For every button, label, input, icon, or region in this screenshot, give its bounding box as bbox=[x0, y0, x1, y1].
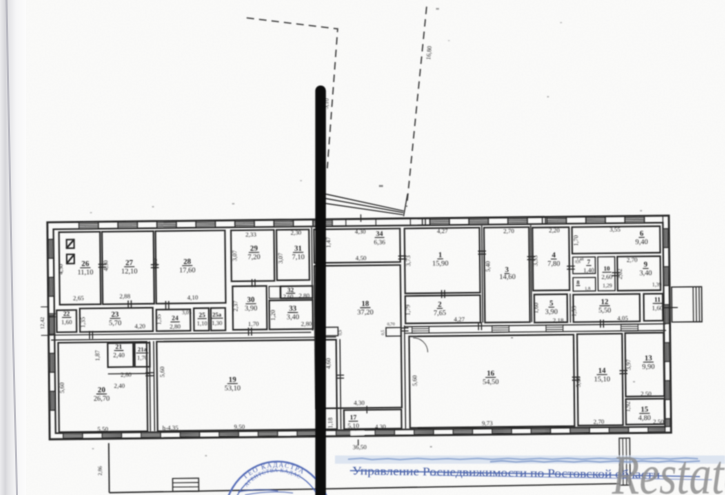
svg-text:4,80: 4,80 bbox=[638, 414, 651, 422]
svg-text:2,02: 2,02 bbox=[617, 269, 624, 280]
svg-text:2,70: 2,70 bbox=[503, 228, 514, 235]
svg-text:4,50: 4,50 bbox=[355, 255, 366, 262]
svg-text:1,35: 1,35 bbox=[156, 314, 163, 325]
svg-text:37,20: 37,20 bbox=[357, 308, 374, 316]
svg-text:16: 16 bbox=[487, 369, 495, 378]
svg-text:14,60: 14,60 bbox=[499, 273, 516, 281]
svg-text:15,10: 15,10 bbox=[594, 375, 611, 383]
svg-text:5,70: 5,70 bbox=[109, 319, 122, 327]
svg-text:1,87: 1,87 bbox=[94, 350, 101, 361]
svg-text:12: 12 bbox=[601, 297, 609, 306]
svg-text:18: 18 bbox=[361, 299, 369, 308]
svg-text:3,90: 3,90 bbox=[245, 304, 258, 312]
svg-text:1,40: 1,40 bbox=[583, 267, 594, 274]
svg-text:3,40: 3,40 bbox=[639, 269, 652, 277]
svg-text:3,05: 3,05 bbox=[182, 310, 192, 316]
svg-text:33: 33 bbox=[289, 304, 297, 313]
svg-text:2,30: 2,30 bbox=[291, 230, 302, 237]
svg-text:9,40: 9,40 bbox=[635, 238, 648, 246]
svg-text:1,60: 1,60 bbox=[61, 319, 72, 326]
svg-text:4,05: 4,05 bbox=[617, 315, 628, 322]
svg-text:1: 1 bbox=[438, 250, 442, 259]
svg-text:17: 17 bbox=[350, 414, 357, 421]
svg-text:1,39: 1,39 bbox=[652, 282, 662, 288]
svg-text:53,10: 53,10 bbox=[224, 384, 241, 392]
svg-text:3,90: 3,90 bbox=[545, 308, 558, 316]
svg-text:5,60: 5,60 bbox=[159, 367, 166, 378]
svg-text:10: 10 bbox=[604, 266, 610, 273]
svg-text:11,10: 11,10 bbox=[77, 268, 93, 276]
svg-text:4: 4 bbox=[552, 250, 556, 259]
svg-text:1,60: 1,60 bbox=[652, 305, 663, 312]
svg-text:1,18: 1,18 bbox=[327, 418, 334, 429]
svg-text:26,70: 26,70 bbox=[94, 395, 111, 403]
svg-text:4,30: 4,30 bbox=[355, 229, 366, 236]
svg-text:5,10: 5,10 bbox=[348, 423, 360, 430]
svg-text:5: 5 bbox=[549, 298, 553, 307]
svg-text:1,29: 1,29 bbox=[603, 283, 613, 289]
svg-text:7,20: 7,20 bbox=[248, 253, 261, 261]
svg-text:31: 31 bbox=[294, 244, 302, 253]
svg-text:h-4,35: h-4,35 bbox=[162, 425, 178, 432]
svg-text:34: 34 bbox=[376, 230, 384, 238]
svg-text:1,53: 1,53 bbox=[571, 306, 578, 317]
svg-text:19: 19 bbox=[229, 375, 237, 384]
svg-text:2,88: 2,88 bbox=[119, 293, 130, 300]
svg-text:4,30: 4,30 bbox=[103, 260, 110, 271]
svg-text:2,65: 2,65 bbox=[73, 295, 84, 302]
svg-text:17,60: 17,60 bbox=[179, 266, 196, 274]
svg-text:2,60: 2,60 bbox=[601, 274, 612, 281]
svg-text:26: 26 bbox=[81, 259, 89, 268]
svg-text:21: 21 bbox=[115, 344, 122, 351]
svg-text:27: 27 bbox=[125, 258, 133, 267]
svg-text:1,70: 1,70 bbox=[573, 235, 580, 246]
svg-text:1,70: 1,70 bbox=[137, 356, 148, 362]
svg-text:4,27: 4,27 bbox=[454, 316, 465, 323]
svg-text:2,86: 2,86 bbox=[98, 466, 104, 476]
svg-text:1,35: 1,35 bbox=[80, 317, 87, 328]
svg-text:9,73: 9,73 bbox=[482, 420, 493, 427]
svg-text:2,37: 2,37 bbox=[232, 301, 239, 312]
svg-text:5,60: 5,60 bbox=[59, 382, 66, 393]
svg-text:2,80: 2,80 bbox=[170, 323, 181, 330]
svg-text:Restate: Restate bbox=[611, 444, 725, 495]
svg-text:15: 15 bbox=[641, 405, 649, 414]
svg-text:3,07: 3,07 bbox=[232, 250, 239, 261]
svg-text:30: 30 bbox=[247, 295, 255, 304]
svg-text:12,42: 12,42 bbox=[40, 317, 46, 329]
svg-text:7,10: 7,10 bbox=[292, 253, 305, 261]
svg-text:16,80: 16,80 bbox=[425, 46, 433, 61]
svg-text:36,50: 36,50 bbox=[353, 444, 367, 451]
svg-text:1,20: 1,20 bbox=[270, 310, 277, 321]
svg-text:2,50: 2,50 bbox=[641, 391, 652, 398]
svg-text:2,40: 2,40 bbox=[113, 352, 125, 359]
svg-text:2,33: 2,33 bbox=[245, 231, 256, 238]
svg-text:25a: 25a bbox=[212, 313, 221, 319]
svg-text:28: 28 bbox=[183, 257, 191, 266]
svg-text:5,40: 5,40 bbox=[485, 261, 492, 272]
svg-text:1,92: 1,92 bbox=[625, 401, 632, 412]
svg-text:23: 23 bbox=[111, 310, 119, 319]
svg-text:3,07: 3,07 bbox=[277, 253, 284, 264]
svg-text:2,18: 2,18 bbox=[553, 317, 564, 324]
svg-text:7,65: 7,65 bbox=[434, 309, 447, 317]
svg-text:1,79: 1,79 bbox=[405, 305, 412, 316]
svg-text:2,20: 2,20 bbox=[549, 227, 560, 234]
svg-text:4,27: 4,27 bbox=[437, 228, 448, 235]
svg-text:13: 13 bbox=[644, 353, 652, 362]
svg-text:1,30: 1,30 bbox=[212, 321, 223, 327]
svg-text:29: 29 bbox=[250, 244, 258, 253]
svg-text:1,70: 1,70 bbox=[248, 321, 259, 328]
svg-text:5,60: 5,60 bbox=[412, 375, 419, 386]
svg-text:3,73: 3,73 bbox=[405, 255, 412, 266]
svg-text:21a: 21a bbox=[138, 347, 147, 353]
svg-text:15,90: 15,90 bbox=[432, 259, 449, 267]
svg-text:9,50: 9,50 bbox=[234, 424, 245, 431]
svg-text:1,60: 1,60 bbox=[533, 303, 540, 314]
svg-text:2,80: 2,80 bbox=[121, 372, 132, 379]
svg-text:1,47: 1,47 bbox=[325, 237, 332, 248]
svg-text:22: 22 bbox=[63, 311, 70, 318]
svg-text:4,30: 4,30 bbox=[58, 264, 65, 275]
svg-text:20: 20 bbox=[98, 385, 106, 394]
svg-text:11: 11 bbox=[654, 297, 661, 304]
svg-text:5,60: 5,60 bbox=[575, 376, 582, 387]
svg-text:9: 9 bbox=[644, 260, 648, 269]
svg-text:3,40: 3,40 bbox=[287, 313, 300, 321]
svg-text:7,80: 7,80 bbox=[547, 260, 560, 268]
svg-text:6: 6 bbox=[640, 229, 644, 238]
svg-text:4,30: 4,30 bbox=[375, 424, 386, 431]
svg-text:2,70: 2,70 bbox=[593, 419, 604, 426]
svg-text:2,40: 2,40 bbox=[114, 383, 125, 390]
svg-text:4,10: 4,10 bbox=[187, 294, 198, 301]
svg-text:3,55: 3,55 bbox=[610, 226, 621, 233]
svg-text:4,20: 4,20 bbox=[135, 323, 146, 330]
svg-text:54,50: 54,50 bbox=[483, 378, 500, 386]
svg-text:2,50: 2,50 bbox=[653, 419, 664, 426]
svg-text:1,10: 1,10 bbox=[197, 321, 208, 327]
svg-text:2,80: 2,80 bbox=[299, 293, 310, 300]
svg-text:6,36: 6,36 bbox=[374, 239, 386, 246]
svg-text:5,50: 5,50 bbox=[598, 306, 611, 314]
svg-text:9,90: 9,90 bbox=[642, 363, 655, 371]
svg-text:2,60: 2,60 bbox=[283, 294, 293, 300]
svg-text:4,60: 4,60 bbox=[325, 358, 332, 369]
svg-text:2,70: 2,70 bbox=[627, 257, 638, 264]
svg-text:5,50: 5,50 bbox=[97, 426, 108, 433]
svg-text:3,97: 3,97 bbox=[625, 359, 632, 370]
svg-text:12,10: 12,10 bbox=[121, 267, 138, 275]
svg-text:25: 25 bbox=[199, 312, 205, 319]
svg-text:24: 24 bbox=[172, 315, 179, 322]
svg-text:4,30: 4,30 bbox=[354, 400, 365, 407]
svg-text:2: 2 bbox=[438, 300, 442, 309]
svg-text:2,80: 2,80 bbox=[301, 321, 312, 328]
svg-text:14: 14 bbox=[598, 366, 606, 375]
